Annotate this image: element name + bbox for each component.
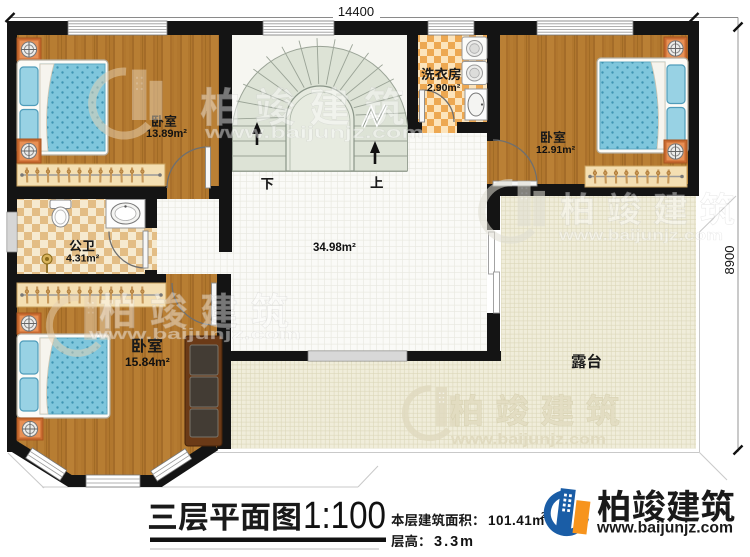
svg-text:13.89m²: 13.89m² [146,128,187,140]
svg-text:101.41m: 101.41m [488,513,545,528]
svg-text:8900: 8900 [722,246,737,275]
svg-text:34.98m²: 34.98m² [313,242,356,254]
svg-text:2.90m²: 2.90m² [427,82,461,94]
svg-text:www.baijunjz.com: www.baijunjz.com [558,227,723,244]
svg-text:14400: 14400 [338,4,374,19]
svg-text:www.baijunjz.com: www.baijunjz.com [203,124,424,142]
svg-text:12.91m²: 12.91m² [536,144,576,156]
svg-text:www.baijunjz.com: www.baijunjz.com [450,432,606,448]
svg-text:3.3m: 3.3m [434,534,475,550]
svg-text:1:100: 1:100 [303,495,386,537]
svg-text:4.31m²: 4.31m² [66,253,100,265]
svg-text:15.84m²: 15.84m² [125,355,170,369]
svg-text:www.baijunjz.com: www.baijunjz.com [87,326,301,343]
svg-text:www.baijunjz.com: www.baijunjz.com [596,520,733,537]
